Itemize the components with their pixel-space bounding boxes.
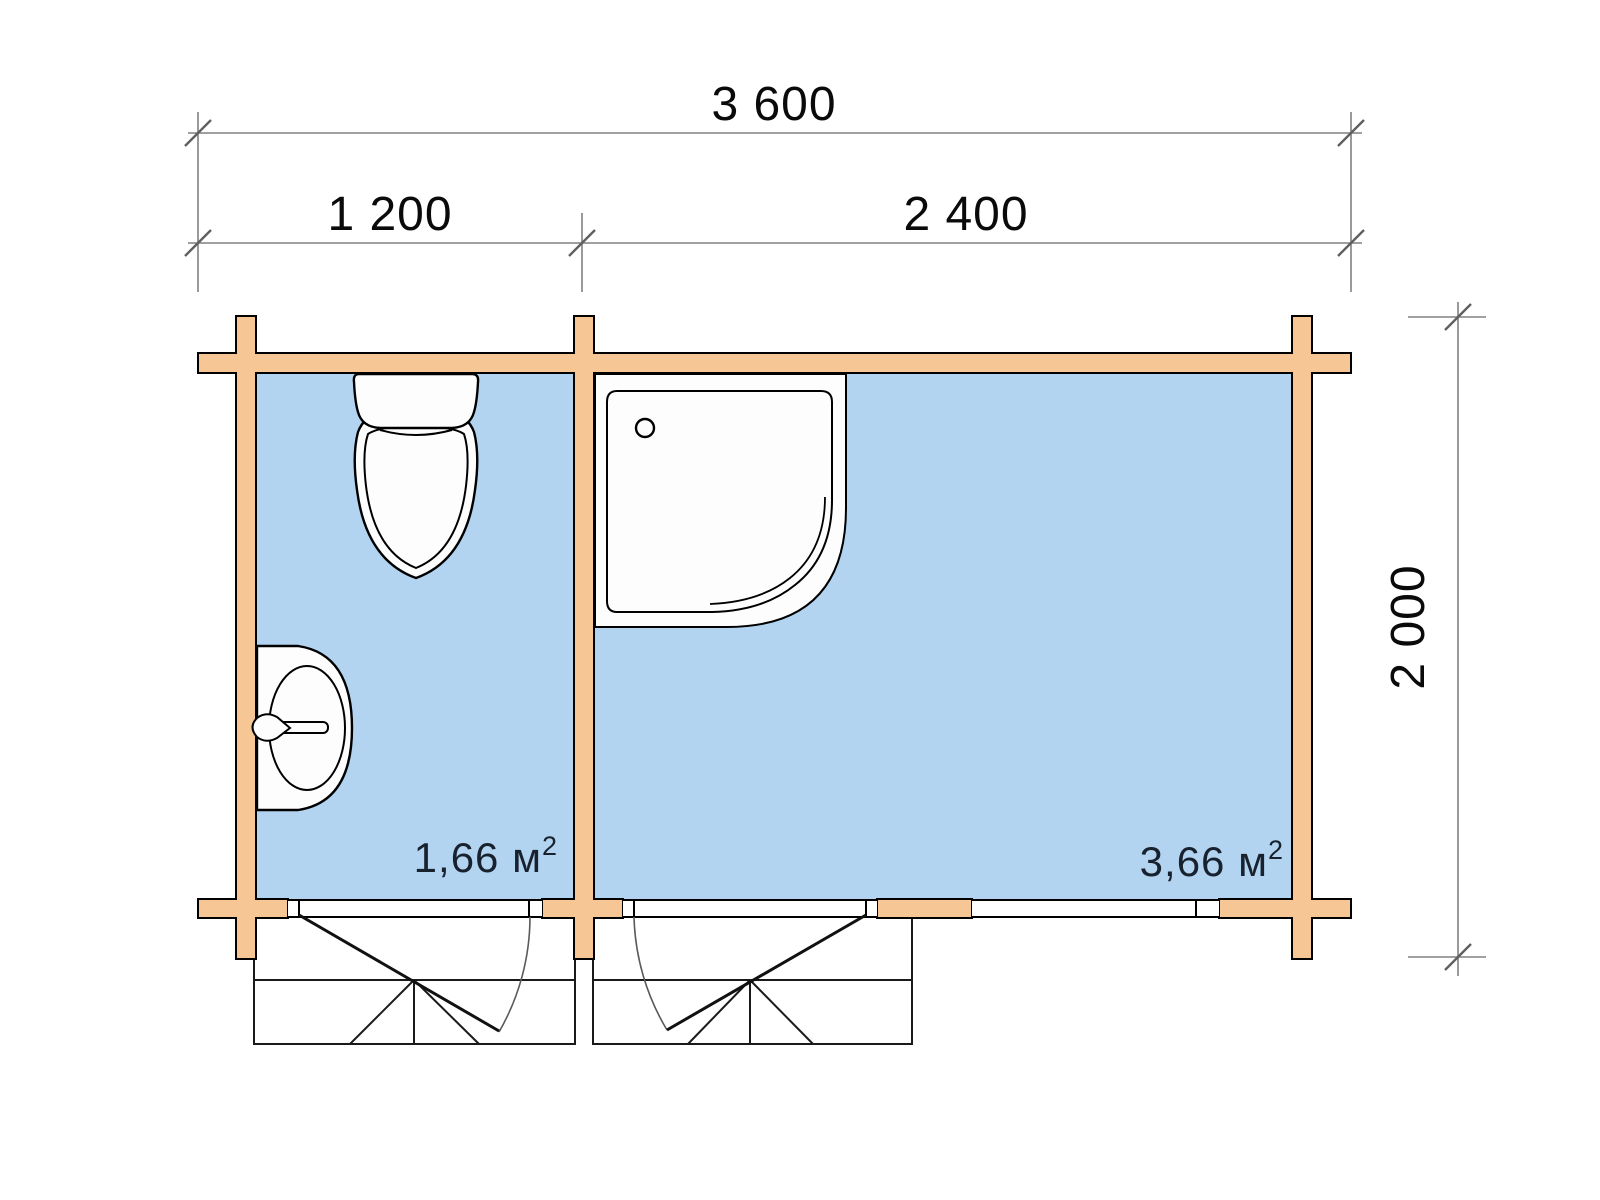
toilet-tank (354, 374, 478, 428)
door-opening-left (299, 900, 529, 917)
wall-post-right (1293, 317, 1311, 958)
dim-label-total-width: 3 600 (711, 78, 836, 131)
floor-plan-svg: 3 600 1 200 2 400 2 000 1,66 м2 3,66 м2 (0, 0, 1600, 1200)
wall-bottom-seg (878, 900, 971, 917)
door-jamb (866, 900, 878, 917)
door-opening-right (634, 900, 866, 917)
dim-label-right-section: 2 400 (903, 188, 1028, 241)
dim-label-depth: 2 000 (1382, 564, 1435, 689)
wall-post-middle (575, 317, 593, 958)
wall-top (199, 354, 1350, 372)
washbasin (253, 646, 353, 810)
floor-plan-page: 3 600 1 200 2 400 2 000 1,66 м2 3,66 м2 (0, 0, 1600, 1200)
door-jamb (622, 900, 634, 917)
door-jamb (287, 900, 299, 917)
area-label-shower: 3,66 м2 (1140, 835, 1284, 885)
door-jamb (529, 900, 543, 917)
area-label-wc: 1,66 м2 (414, 831, 558, 881)
window-band (971, 900, 1196, 917)
area-superscript: 2 (542, 831, 558, 861)
shower-drain (636, 419, 654, 437)
dim-label-left-section: 1 200 (327, 188, 452, 241)
area-value: 1,66 м (414, 834, 542, 881)
shower (595, 374, 846, 627)
wall-openings (287, 900, 1220, 917)
wall-post-left (237, 317, 255, 958)
area-superscript: 2 (1268, 835, 1284, 865)
window-end (1196, 900, 1220, 917)
area-value: 3,66 м (1140, 838, 1268, 885)
wall-bottom-seg (1220, 900, 1350, 917)
